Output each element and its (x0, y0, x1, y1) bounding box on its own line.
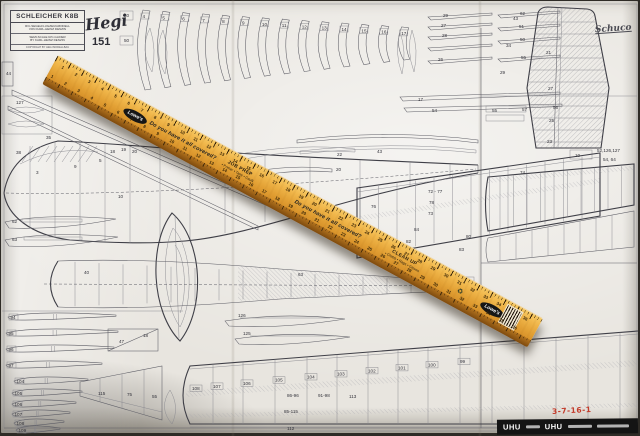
ruler-inch-number: 21 (324, 208, 331, 215)
part-number-label: 95 (9, 331, 15, 336)
part-number-label: 20 (336, 167, 342, 172)
part-number-label: 97 (9, 363, 15, 368)
part-number-label: 10 (262, 22, 268, 27)
part-number-label: 104 (17, 379, 25, 384)
part-number-label: 22 (337, 152, 343, 157)
part-number-label: 11 (282, 23, 287, 28)
part-number-label: 13 (322, 26, 328, 31)
part-number-label: 75 (127, 392, 133, 397)
part-number-label: 6 (182, 17, 185, 22)
part-number-label: 7 (202, 18, 205, 23)
part-number-label: 17 (418, 97, 424, 102)
ruler-inch-number: 16 (258, 172, 265, 179)
part-number-label: 106 (15, 402, 23, 407)
title-block: SCHLEICHER K8B R/C-SEGELFLUGZEUGMODELL V… (10, 10, 85, 51)
part-number-label: 50 (124, 38, 130, 43)
part-number-label: 56 (553, 105, 559, 110)
part-number-label: 106 (243, 381, 251, 386)
ruler-inch-number: 32 (469, 287, 476, 294)
part-number-label: 100 (428, 362, 436, 367)
illegible-print (567, 425, 591, 428)
part-number-label: 55 (152, 394, 158, 399)
part-number-label: 10 (118, 194, 124, 199)
ruler-inch-number: 24 (364, 230, 371, 237)
part-number-label: 125 (243, 331, 251, 336)
part-number-label: 10 (575, 153, 581, 158)
part-number-label: 63 (12, 237, 18, 242)
part-number-label: 74 (520, 170, 526, 175)
part-number-label: 112 (287, 426, 295, 431)
part-number-label: 34 (506, 43, 512, 48)
ruler-inch-number: 30 (443, 272, 450, 279)
part-number-label: 113 (349, 394, 357, 399)
part-number-label: 63 (298, 272, 304, 277)
part-number-label: 23 (547, 139, 553, 144)
part-number-label: 43 (377, 149, 383, 154)
part-number-label: 50 (520, 37, 526, 42)
part-number-label: 5 (162, 15, 165, 20)
part-number-label: 73 (428, 211, 434, 216)
part-number-label: 26 (438, 57, 444, 62)
part-number-label: 12 (302, 24, 308, 29)
part-number-label: 108 (192, 386, 200, 391)
copyright-line: COPYRIGHT BY HEGI MODELLBAU (11, 44, 84, 50)
part-number-label: 9 (242, 21, 245, 26)
ruler-inch-number: 20 (311, 201, 318, 208)
part-number-label: 51 (519, 24, 525, 29)
part-number-label: 108 (17, 421, 25, 426)
uhu-brand-text: UHU (503, 422, 521, 431)
part-number-label: 27 (441, 23, 447, 28)
ruler-inch-number: 10 (179, 129, 186, 136)
part-number-label: 85-115 (284, 409, 298, 414)
photo-of-model-plan: 4567891011121314151617108107106105104103… (0, 0, 640, 436)
plan-number: 151 (92, 36, 110, 48)
plan-subtitle-german: R/C-SEGELFLUGZEUGMODELL VON KARL-HEINZ D… (11, 23, 84, 33)
ruler-inch-number: 19 (298, 194, 305, 201)
ruler-inch-number: 2 (74, 72, 78, 78)
part-number-label: 55 (492, 108, 498, 113)
part-number-label: 105 (275, 378, 283, 383)
part-number-label: 47 (119, 339, 125, 344)
part-number-label: 82 (406, 239, 412, 244)
part-number-label: 3 (36, 170, 39, 175)
part-number-label: 62 (520, 11, 526, 16)
part-number-label: 19 (121, 147, 127, 152)
ruler-inch-number: 5 (113, 94, 117, 100)
part-number-label: 9 (74, 164, 77, 169)
part-number-label: 99 (460, 359, 466, 364)
part-number-label: 126 (238, 313, 246, 318)
plan-title: SCHLEICHER K8B (11, 11, 84, 23)
part-number-label: 40 (84, 270, 90, 275)
part-number-label: 80 (466, 234, 472, 239)
part-number-label: 76 (371, 204, 377, 209)
ruler-inch-number: 22 (337, 215, 344, 222)
part-number-label: 78 (429, 200, 435, 205)
part-number-label: 55 (521, 55, 527, 60)
part-number-label: 5 (99, 158, 102, 163)
part-number-label: 115 (98, 391, 106, 396)
ruler-inch-number: 29 (430, 265, 437, 272)
part-number-label: 14 (342, 27, 348, 32)
part-number-label: 18 (110, 149, 116, 154)
ruler-inch-number: 12 (205, 144, 212, 151)
uhu-brand-text: UHU (545, 422, 563, 431)
part-number-label: 16 (381, 30, 387, 35)
ruler-inch-number: 8 (153, 115, 157, 121)
ruler-inch-number: 36 (522, 315, 529, 322)
uhu-advert-strip: UHU UHU (497, 418, 638, 434)
part-number-label: 15 (361, 28, 367, 33)
part-number-label: 44 (6, 71, 12, 76)
ruler-inch-number: 13 (219, 151, 226, 158)
ruler-inch-number: 6 (126, 101, 130, 107)
part-number-label: 4 (143, 14, 146, 19)
part-number-label: 17 (401, 31, 407, 36)
part-number-label: 29 (443, 13, 449, 18)
part-number-label: 84 (414, 227, 420, 232)
part-number-label: 91-98 (318, 393, 330, 398)
part-number-label: 102 (368, 368, 376, 373)
part-number-label: 94 (11, 315, 17, 320)
ruler-inch-number: 25 (377, 237, 384, 244)
ruler-inch-number: 18 (285, 187, 292, 194)
part-number-label: 127 (16, 100, 24, 105)
part-number-label: 101 (398, 365, 406, 370)
part-number-label: 103 (337, 372, 345, 377)
ruler-inch-number: 11 (192, 136, 198, 143)
ruler-inch-number: 9 (166, 122, 170, 128)
part-number-label: 18 (143, 333, 149, 338)
ruler-inch-number: 1 (60, 65, 64, 71)
part-number-label: 107 (15, 412, 23, 417)
part-number-label: 83 (459, 247, 465, 252)
part-number-label: 57 (522, 107, 528, 112)
part-number-label: 86-96 (287, 393, 299, 398)
part-number-label: 21 (546, 50, 552, 55)
ruler-inch-number: 23 (350, 222, 357, 229)
part-number-label: 54, 64 (603, 157, 616, 162)
part-number-label: 25 (549, 118, 555, 123)
part-number-label: 29 (500, 70, 506, 75)
part-number-label: 28 (442, 33, 448, 38)
part-number-label: 105 (15, 391, 23, 396)
part-number-label: 62 (12, 219, 18, 224)
plan-subtitle-english: SEMI-SCALE R/C-GLIDER BY KARL-HEINZ DENZ… (11, 33, 84, 44)
part-number-label: 8 (222, 19, 225, 24)
part-number-label: 43 (513, 16, 519, 21)
ruler-inch-number: 33 (482, 294, 489, 301)
part-number-label: 109 (19, 428, 27, 433)
part-number-label: 107 (213, 384, 221, 389)
part-number-label: 104 (307, 375, 315, 380)
part-number-label: 72 - 77 (428, 189, 443, 194)
ruler-inch-number: 3 (87, 79, 91, 85)
ruler-inch-number: 4 (100, 86, 104, 92)
illegible-print (526, 425, 540, 428)
part-number-label: 52,126,127 (597, 148, 620, 153)
part-number-label: 54 (432, 108, 438, 113)
part-number-label: 35 (46, 135, 52, 140)
part-number-label: 27 (548, 86, 554, 91)
ruler-inch-number: 31 (456, 280, 463, 287)
ruler-inch-number: 17 (271, 179, 278, 186)
illegible-print (596, 425, 628, 428)
part-number-label: 20 (132, 149, 138, 154)
part-number-label: 38 (16, 150, 22, 155)
part-number-label: 96 (9, 347, 15, 352)
